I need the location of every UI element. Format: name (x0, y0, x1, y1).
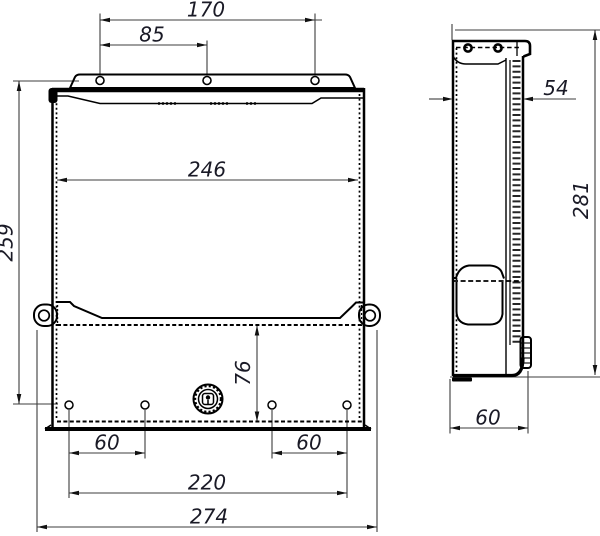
dim-label-281: 281 (569, 181, 593, 219)
dim-label-76: 76 (231, 360, 255, 385)
dim-label-60-left: 60 (94, 431, 119, 455)
dim-label-60-right: 60 (296, 431, 321, 455)
side-foot-mark (452, 378, 472, 382)
dim-label-54: 54 (543, 76, 568, 100)
connector (194, 385, 223, 414)
technical-drawing: 170 85 246 259 76 (0, 0, 600, 536)
dim-label-246: 246 (188, 158, 226, 182)
dim-label-170: 170 (187, 0, 225, 22)
dim-label-259: 259 (0, 223, 18, 261)
dim-label-85: 85 (139, 23, 164, 47)
drawing-canvas: 170 85 246 259 76 (0, 0, 600, 536)
dim-label-274: 274 (190, 505, 228, 529)
dim-label-220: 220 (188, 471, 226, 495)
dim-label-60-side: 60 (475, 406, 500, 430)
